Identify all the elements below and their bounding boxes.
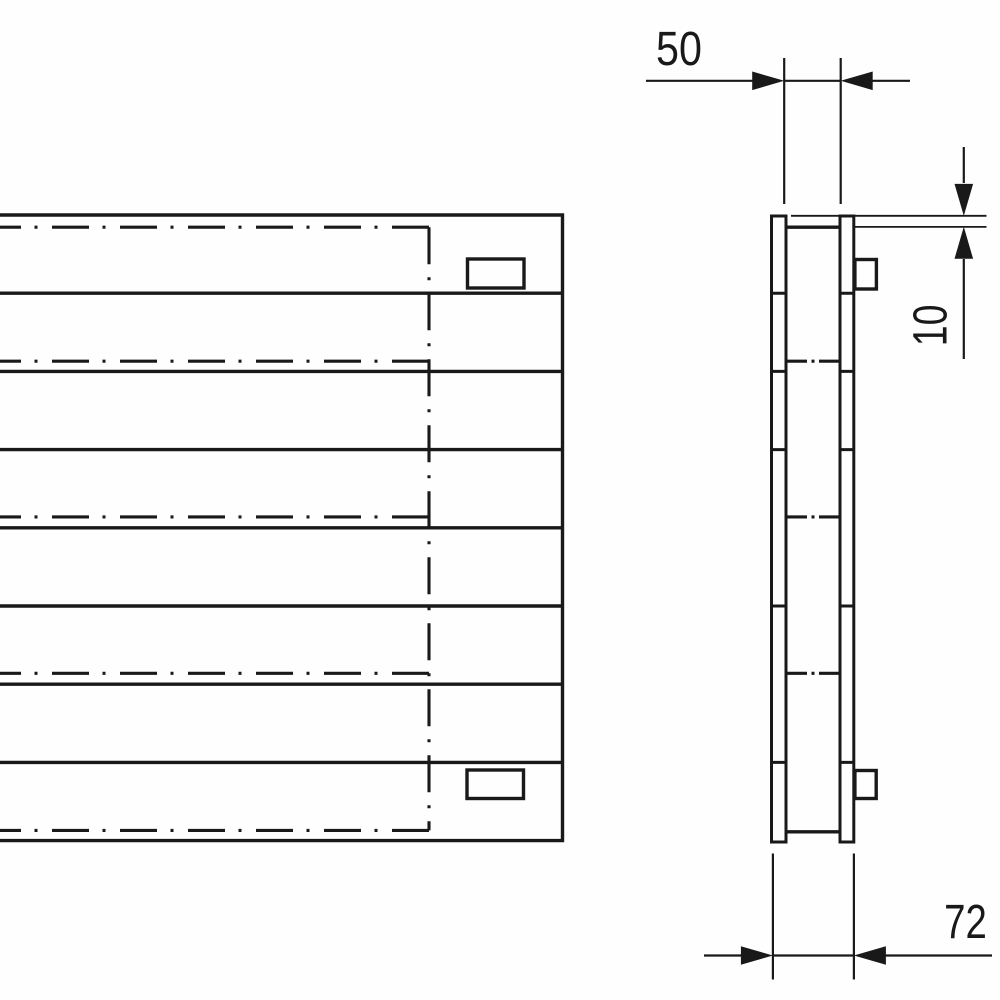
svg-text:50: 50 (656, 22, 702, 76)
svg-text:72: 72 (944, 896, 987, 949)
svg-text:10: 10 (904, 305, 958, 347)
